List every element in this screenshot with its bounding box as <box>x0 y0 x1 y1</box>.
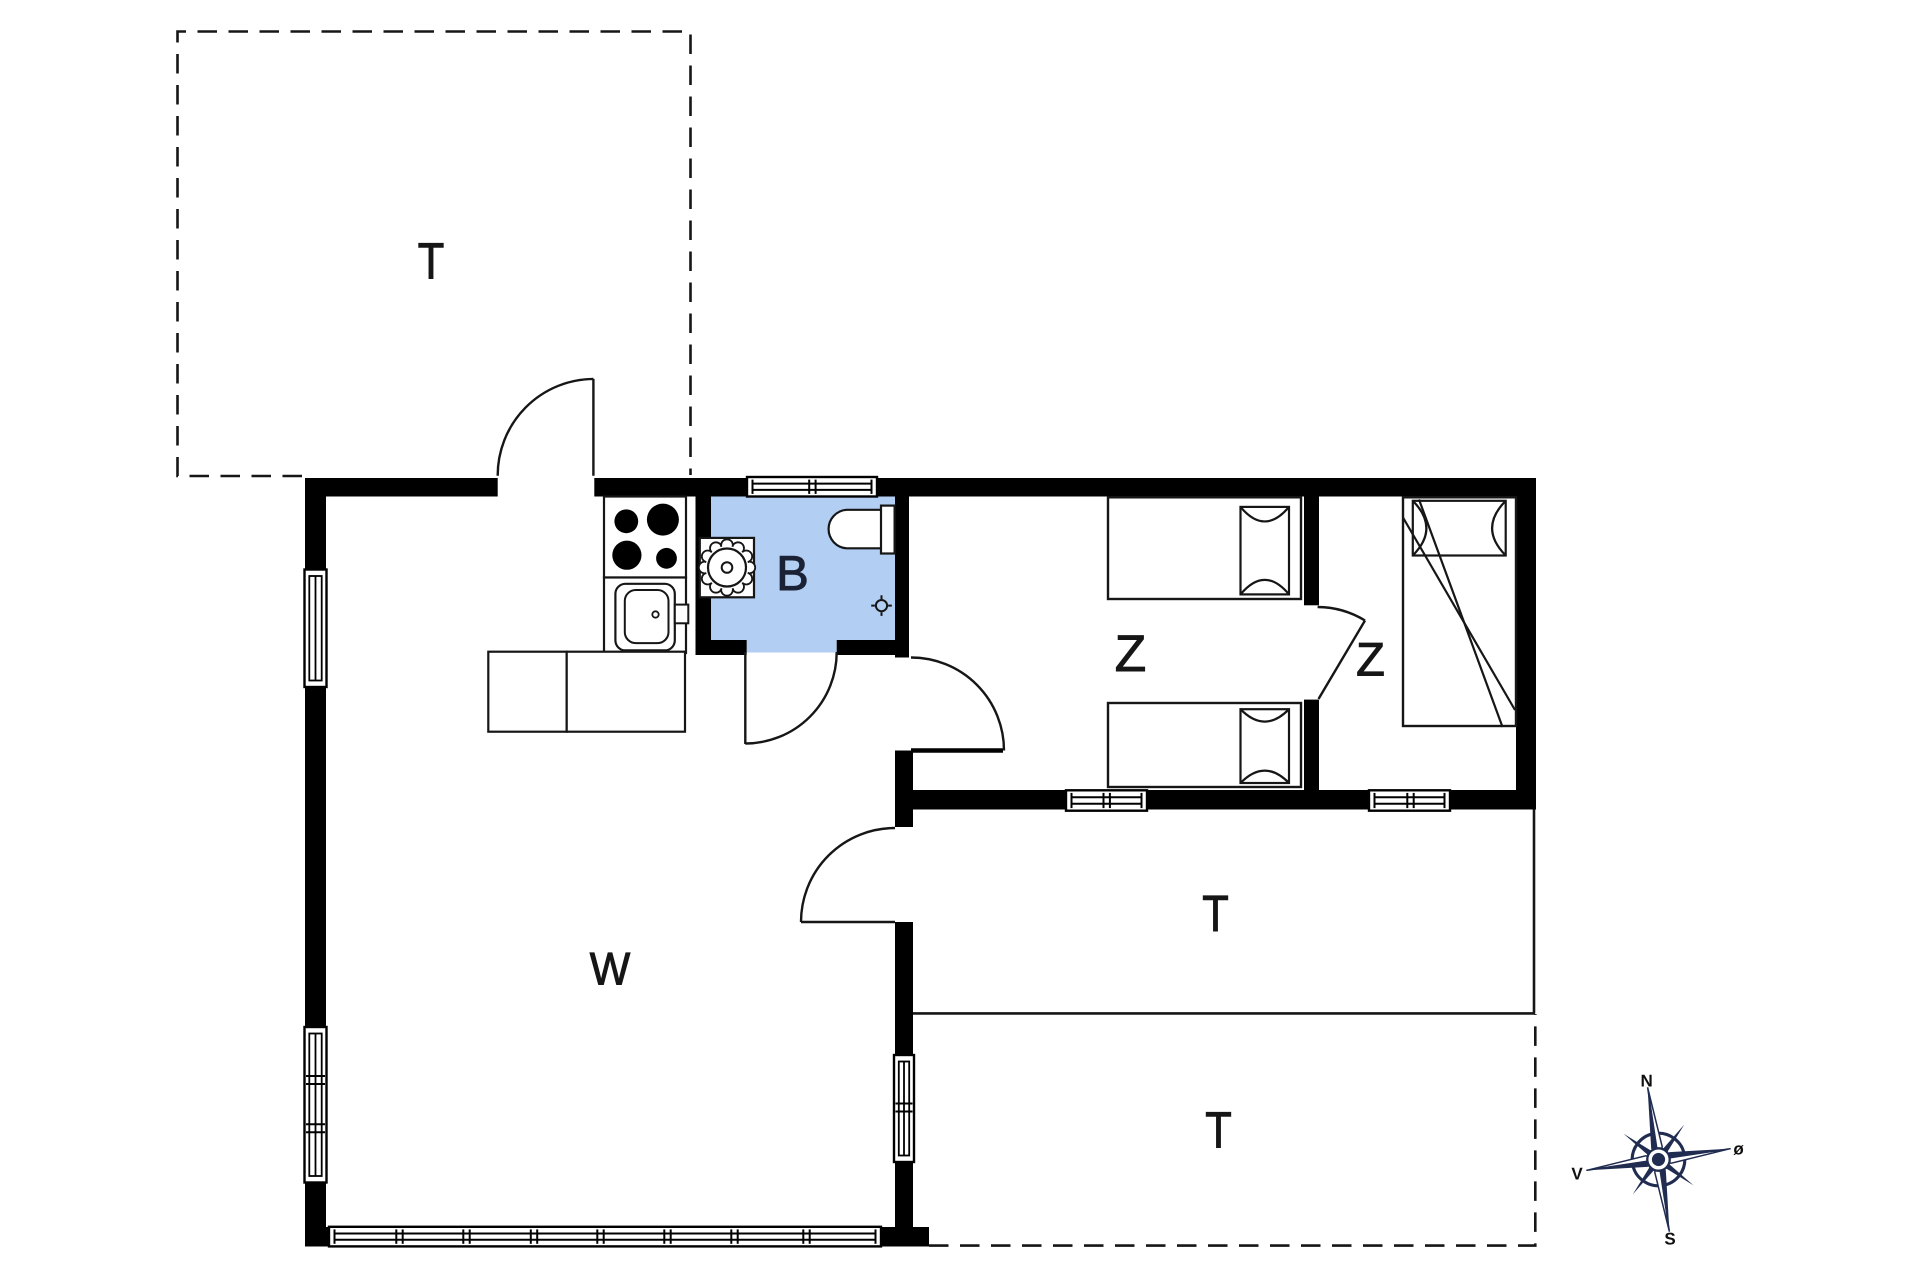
svg-text:T: T <box>418 233 445 290</box>
svg-text:V: V <box>1571 1165 1583 1184</box>
svg-text:S: S <box>1664 1230 1675 1249</box>
svg-text:T: T <box>1202 885 1229 942</box>
svg-text:N: N <box>1640 1072 1652 1091</box>
svg-text:Z: Z <box>1115 624 1146 682</box>
svg-text:W: W <box>590 943 631 995</box>
svg-text:T: T <box>1205 1102 1232 1159</box>
svg-text:Z: Z <box>1356 633 1385 686</box>
svg-text:B: B <box>776 547 809 601</box>
svg-text:ø: ø <box>1733 1140 1744 1159</box>
